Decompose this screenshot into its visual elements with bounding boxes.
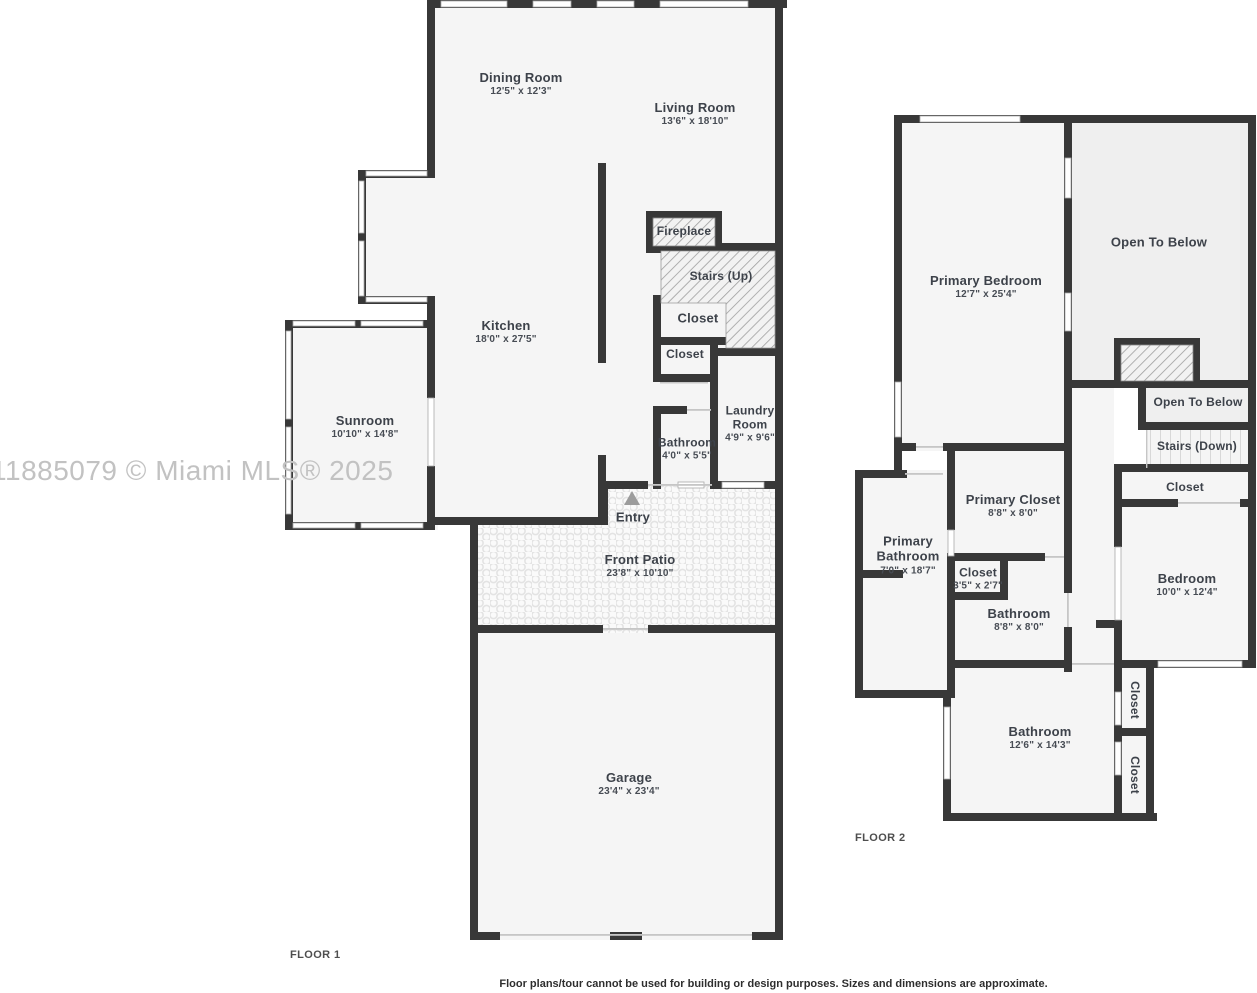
- room-label-bathroom-large: Bathroom 12'6" x 14'3": [1009, 724, 1072, 752]
- room-label-closet-vert-bottom: Closet: [1128, 756, 1142, 794]
- chimney-hatch: [1121, 345, 1193, 381]
- room-label-garage: Garage 23'4" x 23'4": [598, 770, 659, 798]
- room-label-closet-vert-top: Closet: [1128, 681, 1142, 719]
- room-label-bathroom: Bathroom 4'0" x 5'5": [658, 436, 716, 463]
- room-label-entry: Entry: [616, 509, 650, 524]
- room-label-front-patio: Front Patio 23'8" x 10'10": [605, 552, 676, 580]
- disclaimer-text: Floor plans/tour cannot be used for buil…: [290, 978, 1257, 990]
- room-label-primary-bathroom: Primary Bathroom 7'0" x 18'7": [867, 533, 949, 576]
- room-label-primary-closet: Primary Closet 8'8" x 8'0": [966, 492, 1061, 520]
- room-label-sunroom: Sunroom 10'10" x 14'8": [331, 413, 398, 441]
- room-label-primary-bedroom: Primary Bedroom 12'7" x 25'4": [930, 273, 1042, 301]
- room-label-fireplace: Fireplace: [657, 224, 712, 238]
- room-label-closet-small: Closet 3'5" x 2'7": [953, 566, 1003, 593]
- floor1-tag: FLOOR 1: [290, 949, 340, 961]
- floorplan-drawing: [0, 0, 1257, 993]
- floor2-tag: FLOOR 2: [855, 832, 905, 844]
- room-label-bedroom: Bedroom 10'0" x 12'4": [1156, 571, 1217, 599]
- room-label-kitchen: Kitchen 18'0" x 27'5": [475, 318, 536, 346]
- mls-watermark: 11885079 © Miami MLS® 2025: [0, 455, 393, 487]
- room-label-laundry-room: Laundry Room 4'9" x 9'6": [718, 403, 782, 444]
- room-label-bathroom-upper: Bathroom 8'8" x 8'0": [988, 606, 1051, 634]
- room-label-stairs-down: Stairs (Down): [1157, 439, 1237, 453]
- room-label-closet-a: Closet: [678, 310, 719, 325]
- room-label-open-to-below-small: Open To Below: [1153, 395, 1242, 409]
- floor2-plan: [855, 115, 1256, 821]
- room-label-closet-stairs: Closet: [1166, 480, 1204, 494]
- floorplan-canvas: Dining Room 12'5" x 12'3" Living Room 13…: [0, 0, 1257, 993]
- room-label-closet-b: Closet: [666, 347, 704, 361]
- room-label-stairs-up: Stairs (Up): [690, 269, 753, 283]
- room-label-dining-room: Dining Room 12'5" x 12'3": [479, 70, 562, 98]
- room-label-open-to-below-large: Open To Below: [1111, 234, 1207, 249]
- room-label-living-room: Living Room 13'6" x 18'10": [655, 100, 736, 128]
